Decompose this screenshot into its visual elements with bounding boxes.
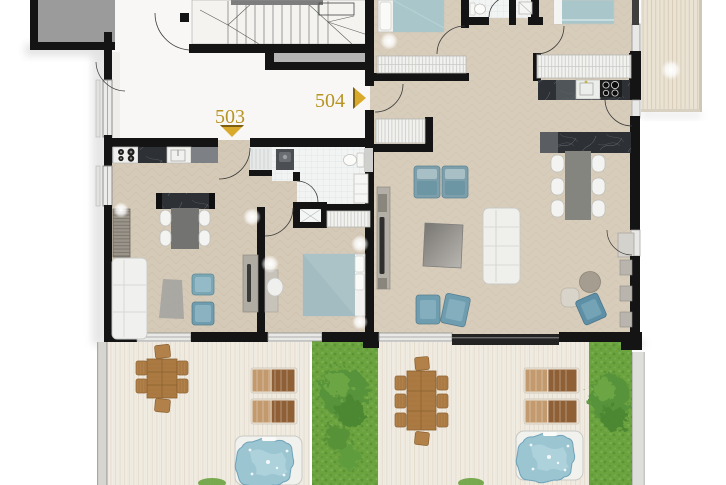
svg-text:504: 504 [315, 90, 345, 112]
svg-text:503: 503 [215, 106, 245, 128]
